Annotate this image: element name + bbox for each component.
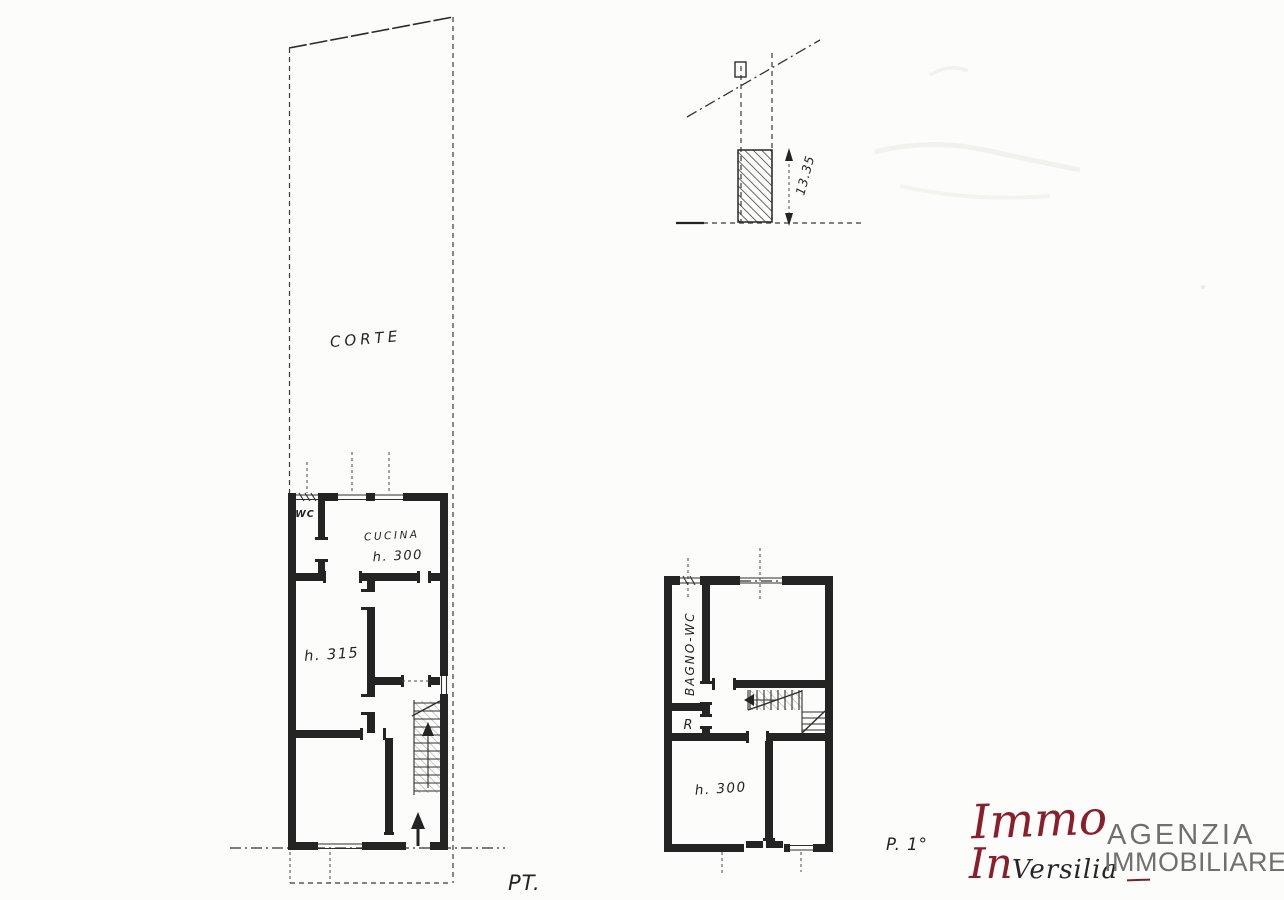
bathroom-label: BAGNO-WC — [683, 611, 697, 696]
bedroom-height-label: h. 300 — [694, 779, 747, 799]
windows — [680, 576, 813, 850]
entrance-arrow — [411, 812, 425, 846]
corte-label: CORTE — [329, 327, 402, 351]
logo-versilia: Versilia — [1012, 855, 1118, 885]
kitchen-height-label: h. 300 — [372, 548, 423, 566]
logo-underline-accent — [1127, 879, 1150, 882]
plot-boundary-top — [289, 17, 453, 48]
floorplan-drawing: CORTE — [0, 0, 1284, 900]
ground-floor-title: PT. — [508, 871, 541, 895]
building-section-hatch — [738, 150, 772, 222]
first-floor-title: P. 1° — [886, 835, 928, 854]
section-roof-line — [687, 40, 820, 117]
walls — [288, 493, 448, 850]
logo: Immo In Versilia AGENZIA IMMOBILIARE — [963, 795, 1284, 900]
scan-smudges — [875, 68, 1205, 289]
ground-floor-plan: WC CUCINA h. 300 h. 315 PT. — [230, 452, 541, 895]
section-detail: 13.35 — [676, 40, 862, 226]
staircase — [412, 700, 440, 795]
kitchen-room-label: CUCINA — [364, 529, 420, 544]
agency-name-line2: IMMOBILIARE — [1104, 847, 1284, 878]
logo-in: In — [969, 839, 1013, 888]
height-dimension-label: 13.35 — [792, 153, 817, 196]
main-room-height-label: h. 315 — [304, 645, 360, 665]
storage-room-label: R — [683, 718, 692, 733]
floorplan-sheet: CORTE — [0, 0, 1284, 900]
first-floor-plan: BAGNO-WC R h. 300 P. 1° — [664, 548, 928, 875]
height-dimension-arrow — [785, 148, 793, 226]
wc-room-label: WC — [295, 509, 314, 520]
staircase — [744, 690, 825, 733]
